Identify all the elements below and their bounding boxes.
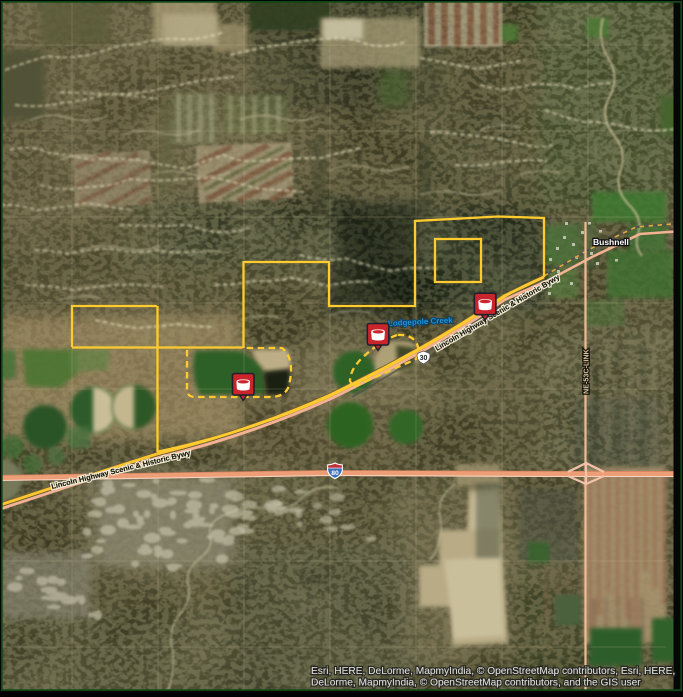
svg-text:NE-53C-LINK: NE-53C-LINK — [582, 348, 591, 394]
svg-text:DeLorme, MapmyIndia, © OpenStr: DeLorme, MapmyIndia, © OpenStreetMap con… — [311, 678, 641, 689]
svg-text:Bushnell: Bushnell — [593, 237, 629, 247]
svg-text:30: 30 — [420, 355, 428, 362]
svg-text:80: 80 — [331, 470, 339, 477]
svg-text:Esri, HERE, DeLorme, MapmyIndi: Esri, HERE, DeLorme, MapmyIndia, © OpenS… — [311, 666, 675, 677]
